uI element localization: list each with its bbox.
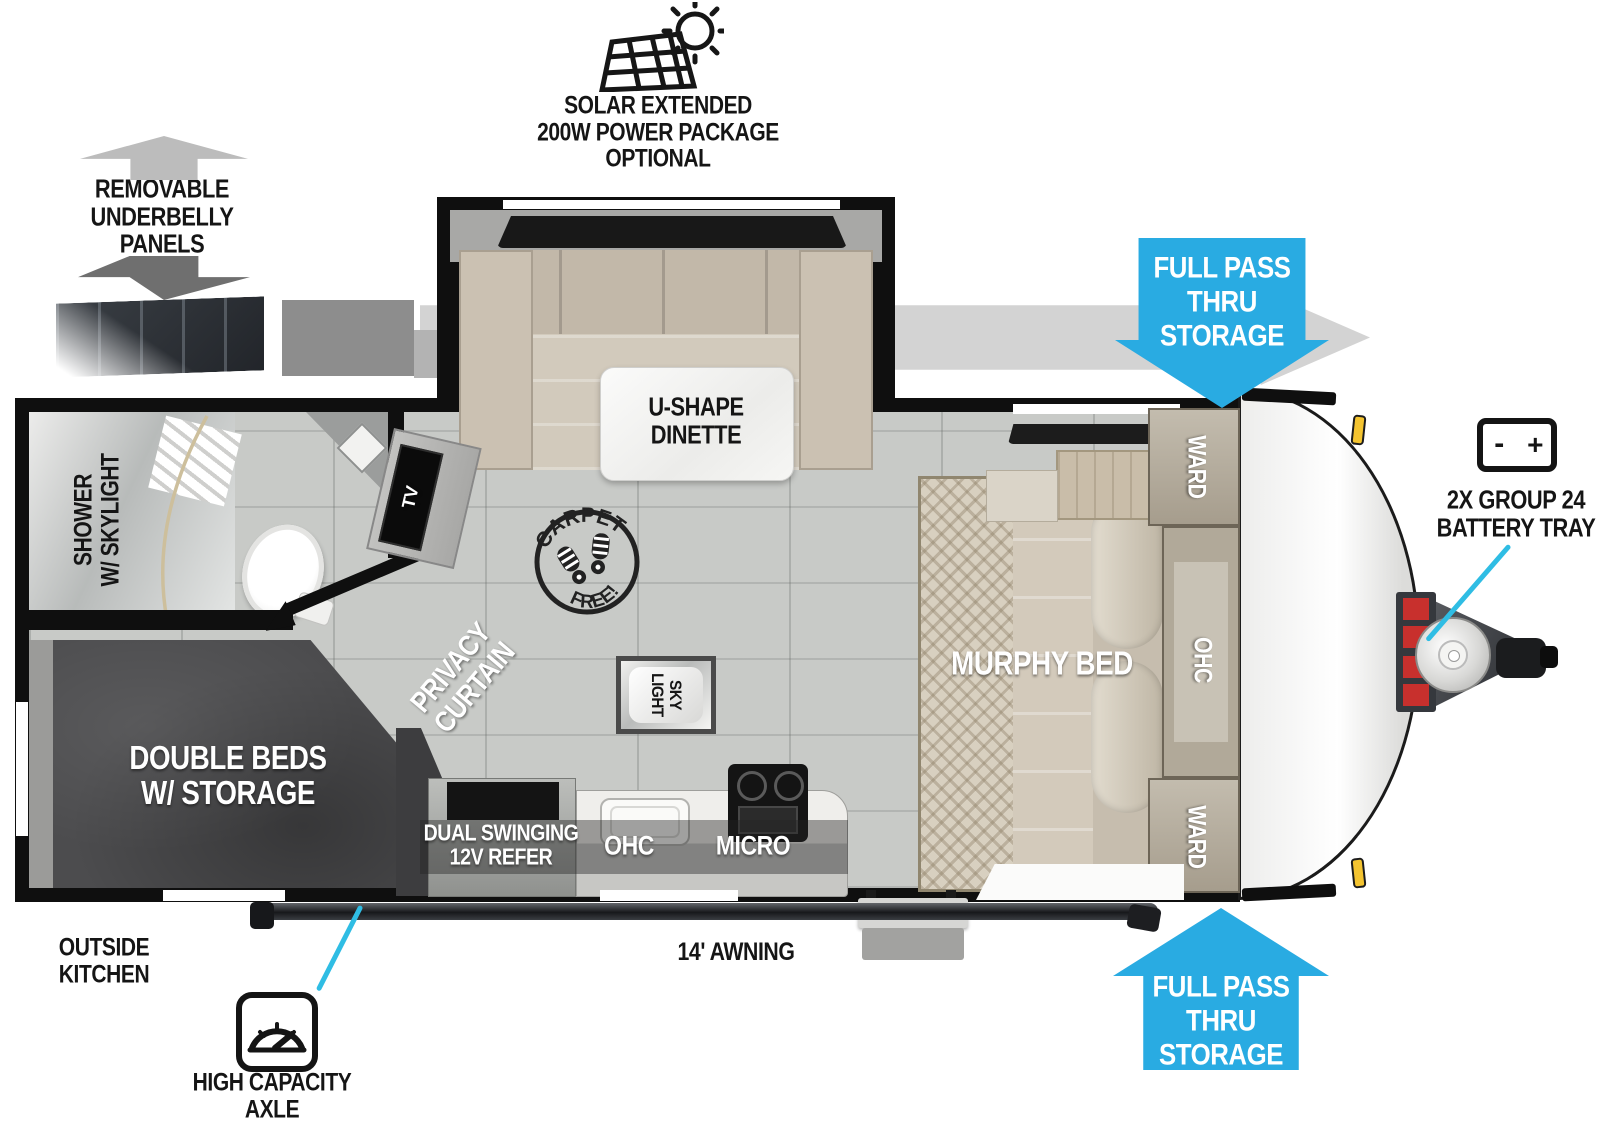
battery-plus: + — [1527, 430, 1543, 460]
wheel-center — [1448, 650, 1460, 662]
front-cap — [1238, 388, 1420, 900]
bathroom-wall — [15, 610, 293, 630]
ohc-front-label: OHC — [1189, 637, 1216, 683]
pass-thru-top-label: FULL PASS THRU STORAGE — [1153, 252, 1290, 355]
murphy-mattress — [1013, 479, 1093, 889]
murphy-bed — [918, 476, 1170, 892]
burner-icon — [737, 771, 767, 801]
carpet-free-stamp: CARPET FREE! — [521, 496, 654, 629]
battery-icon: - + — [1477, 418, 1557, 472]
coupler-tip — [1540, 646, 1558, 668]
tv-screen: TV — [378, 444, 443, 551]
clearance-light-icon — [1350, 414, 1366, 445]
pass-thru-bottom-label: FULL PASS THRU STORAGE — [1152, 971, 1289, 1074]
bed-head-shelf — [986, 470, 1058, 522]
dinette-bench-left — [459, 250, 533, 470]
burner-icon — [774, 771, 804, 801]
awning-end-fitting — [1126, 903, 1162, 932]
bottom-wall-door-gap — [600, 890, 738, 901]
bed-head-cabinet — [1056, 450, 1158, 520]
rear-wall-door-gap — [163, 890, 285, 901]
shower-glass-curve — [29, 412, 235, 624]
murphy-chevron — [921, 479, 1013, 889]
dinette-label: U-SHAPE DINETTE — [648, 393, 743, 448]
entry-step-lower — [862, 928, 964, 960]
skylight-label: SKY LIGHT — [648, 673, 684, 717]
outside-kitchen-label: OUTSIDE KITCHEN — [59, 935, 149, 988]
entry-landing — [976, 864, 1184, 900]
ward-front-bottom-label: WARD — [1183, 805, 1210, 868]
battery-cell — [1403, 684, 1429, 706]
slideout-wall-window — [503, 200, 840, 209]
murphy-bed-label: MURPHY BED — [951, 647, 1133, 682]
tongue-jack-wheel — [1415, 617, 1491, 693]
tv-label: TV — [399, 485, 423, 511]
battery-minus: - — [1494, 428, 1504, 460]
awning-end-fitting — [250, 902, 274, 929]
micro-label: MICRO — [716, 832, 790, 861]
refer-top-vent — [447, 782, 559, 820]
underbelly-panels-image — [56, 296, 264, 377]
dinette-bench-right — [799, 250, 873, 470]
underbelly-label: REMOVABLE UNDERBELLY PANELS — [90, 176, 233, 259]
scale-icon — [236, 992, 318, 1072]
panels-repeat-box — [282, 300, 414, 376]
refer-label: DUAL SWINGING 12V REFER — [424, 821, 579, 870]
battery-label: 2X GROUP 24 BATTERY TRAY — [1437, 486, 1596, 541]
down-arrow-icon — [78, 256, 250, 300]
dinette-window — [497, 216, 847, 248]
awning-bar — [262, 903, 1158, 920]
left-wall-window — [16, 702, 28, 836]
double-beds-label: DOUBLE BEDS W/ STORAGE — [129, 741, 326, 811]
axle-label: HIGH CAPACITY AXLE — [193, 1070, 352, 1123]
shower-label: SHOWER W/ SKYLIGHT — [71, 453, 124, 586]
bed-head-strip — [29, 640, 53, 888]
kitchen-ohc-label: OHC — [604, 832, 654, 861]
ward-front-top-label: WARD — [1183, 435, 1210, 498]
solar-label: SOLAR EXTENDED 200W POWER PACKAGE OPTION… — [537, 92, 779, 172]
floorplan-diagram: PANELS REPEAT REMOVABLE UNDERBELLY PANEL… — [0, 0, 1600, 1134]
coupler — [1496, 638, 1546, 678]
awning-label: 14' AWNING — [678, 939, 795, 966]
solar-panel-icon — [598, 2, 724, 92]
bootprint-icon — [552, 529, 620, 590]
battery-cell — [1403, 598, 1429, 620]
clearance-light-icon — [1350, 857, 1366, 888]
